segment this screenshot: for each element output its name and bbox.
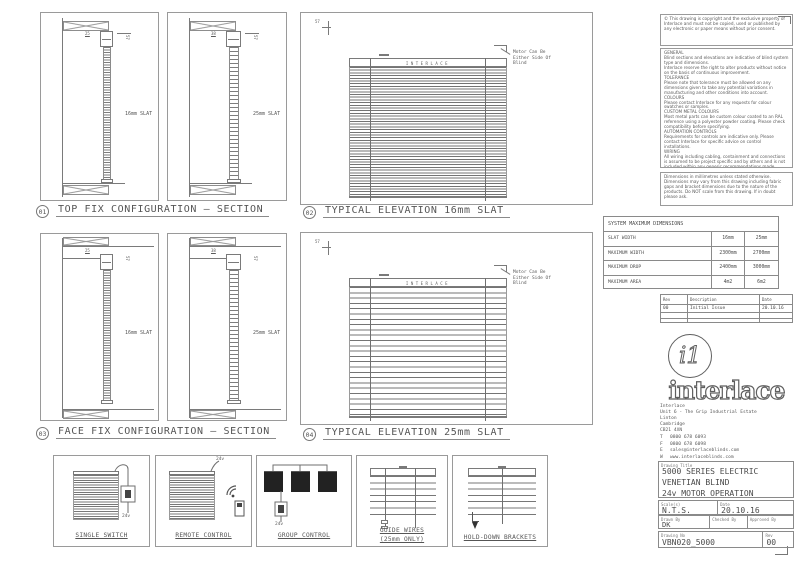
slat-size-label: 16mm SLAT — [125, 111, 152, 117]
mini-headrail — [370, 468, 436, 476]
detail-caption: GROUP CONTROL — [257, 532, 351, 541]
rev-cell: 00 — [661, 304, 687, 312]
table-cell: MAXIMUM AREA — [604, 275, 711, 290]
slat-stack-16mm — [103, 47, 111, 181]
date-cell: Date 20.10.16 — [718, 501, 793, 514]
voltage-label: 24v — [275, 523, 283, 528]
bracket-clip — [379, 274, 389, 276]
ladder-tape-left — [370, 278, 371, 421]
viewport-number-badge: 03 — [36, 427, 49, 440]
detail-remote-control: 24v REMOTE CONTROL — [155, 455, 252, 547]
ladder-tape-right — [485, 278, 486, 421]
voltage-label: 24v — [122, 515, 130, 520]
rev-cell: Initial Issue — [687, 304, 759, 312]
slat-area-16mm — [349, 67, 507, 196]
viewport-number-badge: 02 — [303, 206, 316, 219]
slat-size-label: 25mm SLAT — [253, 111, 280, 117]
headrail-elevation: INTERLACE — [349, 278, 507, 287]
bracket-arm-line — [190, 258, 226, 259]
bottom-rail — [349, 196, 507, 198]
contact-line: E sales@interlaceblinds.com — [660, 448, 739, 455]
rev-header: Rev — [661, 295, 687, 304]
table-cell: 16mm — [711, 231, 744, 246]
viewport-caption: TYPICAL ELEVATION 25mm SLAT — [323, 427, 510, 440]
headrail-detail-line — [228, 262, 239, 263]
ceiling-batten-hatch — [63, 237, 109, 246]
table-cell: 4m2 — [711, 275, 744, 290]
ceiling-line — [62, 246, 154, 247]
checked-by-cell: Checked By — [710, 516, 747, 528]
slat-stack-25mm — [229, 47, 239, 181]
field-label: Checked By — [712, 517, 736, 522]
viewport-topfix-25mm-section: 38 57 25mm SLAT — [167, 12, 287, 201]
wall-line — [189, 18, 190, 197]
ceiling-batten-hatch — [190, 237, 236, 246]
company-contacts: T 0800 678 6093 F 0800 678 6098 E sales@… — [660, 435, 739, 462]
ceiling-batten-hatch — [63, 21, 109, 31]
center-tape — [502, 468, 503, 524]
headrail-elevation: INTERLACE — [349, 58, 507, 67]
bottom-rail — [101, 400, 113, 404]
general-notes: GENERAL Blind sections and elevations ar… — [660, 48, 793, 168]
detail-caption: REMOTE CONTROL — [156, 532, 251, 541]
voltage-label: 24v — [216, 458, 224, 463]
sill-batten-hatch — [190, 185, 236, 195]
dim-width-label: 25 — [85, 249, 90, 253]
drawing-title: 5000 SERIES ELECTRIC VENETIAN BLIND 24v … — [662, 467, 758, 499]
detail-caption: HOLD-DOWN BRACKETS — [453, 534, 547, 543]
sill-line — [63, 183, 125, 184]
ladder-tape-left — [370, 58, 371, 201]
slat-stack-16mm — [103, 270, 111, 400]
detail-hold-down-brackets: HOLD-DOWN BRACKETS — [452, 455, 548, 547]
dim-line — [117, 33, 131, 34]
title-block-drawing-title: Drawing Title 5000 SERIES ELECTRIC VENET… — [658, 461, 794, 498]
contact-line: T 0800 678 6093 — [660, 435, 739, 442]
guide-wire-left — [385, 468, 386, 528]
system-max-dimensions-table: SYSTEM MAXIMUM DIMENSIONS SLAT WIDTH 16m… — [603, 216, 779, 289]
rev-cell: Rev 00 — [763, 532, 793, 547]
table-cell: 3000mm — [744, 260, 778, 275]
bracket-clip — [399, 466, 407, 468]
headrail-brand-text: INTERLACE — [350, 281, 506, 286]
company-address: Interlace Unit 6 - The Grip Industrial E… — [660, 404, 757, 434]
table-cell: 6m2 — [744, 275, 778, 290]
detail-group-control: 24v GROUP CONTROL — [256, 455, 352, 547]
viewport-facefix-25mm-section: 38 57 25mm SLAT — [167, 233, 287, 421]
motor-annotation: Motor Can Be Either Side Of Blind — [513, 270, 563, 287]
revision-table: Rev Description Date 00 Initial Issue 20… — [660, 294, 793, 323]
hold-down-pin-arrow — [472, 522, 478, 529]
table-cell: SLAT WIDTH — [604, 231, 711, 246]
slat-stack-25mm — [229, 270, 239, 400]
contact-key: T — [660, 435, 670, 442]
bracket-arm-line — [63, 258, 100, 259]
floor-batten-hatch — [190, 410, 236, 419]
drawing-number-cell: Drawing No VBN020_5000 — [659, 532, 763, 547]
wire-anchor-top — [381, 520, 388, 524]
viewport-facefix-16mm-section: 25 57 16mm SLAT — [40, 233, 159, 421]
bracket-clip — [379, 54, 389, 56]
contact-key: E — [660, 448, 670, 455]
dim-height-label: 57 — [253, 256, 257, 261]
guide-wire-right — [415, 468, 416, 528]
title-block-scale-date: Scale(s) N.T.S. Date 20.10.16 — [658, 500, 794, 515]
wall-line — [62, 18, 63, 197]
dim-width-label: 25 — [85, 32, 90, 36]
ceiling-batten-hatch — [190, 21, 236, 31]
dim-width-label: 38 — [211, 249, 216, 253]
detail-guide-wires: GUIDE WIRES (25mm ONLY) — [356, 455, 448, 547]
dimensions-note: Dimensions in millimetres unless stated … — [660, 172, 793, 206]
dim-line — [245, 33, 259, 34]
rev-cell — [759, 318, 792, 324]
ladder-tape-right — [485, 58, 486, 201]
viewport-caption: TYPICAL ELEVATION 16mm SLAT — [323, 205, 510, 218]
viewport-elevation-25mm: 57 INTERLACE Motor Can Be Either Side Of… — [300, 232, 593, 425]
dim-extension-line — [328, 241, 329, 255]
floor-batten-hatch — [63, 410, 109, 419]
bottom-rail — [101, 179, 113, 183]
slat-size-label: 25mm SLAT — [253, 330, 280, 336]
wall-line — [62, 238, 63, 418]
mini-slats — [370, 476, 436, 520]
headrail-detail-line — [102, 262, 111, 263]
scale-cell: Scale(s) N.T.S. — [659, 501, 718, 514]
drawn-by-cell: Drawn By DK — [659, 516, 710, 528]
detail-caption: GUIDE WIRES (25mm ONLY) — [357, 527, 447, 544]
rev-value: 00 — [766, 538, 776, 549]
bottom-rail — [227, 400, 241, 404]
viewport-number-badge: 01 — [36, 205, 49, 218]
brand-wordmark: interlace — [660, 376, 793, 405]
table-cell: 2700mm — [744, 246, 778, 261]
viewport-elevation-16mm: 57 INTERLACE Motor Can Be Either Side Of… — [300, 12, 593, 205]
interlace-logo-icon: i1 — [668, 334, 712, 378]
headrail-brand-text: INTERLACE — [350, 61, 506, 66]
detail-single-switch: 24v SINGLE SWITCH — [53, 455, 150, 547]
dim-tick — [322, 247, 331, 248]
dim-height-label: 57 — [253, 35, 257, 40]
dim-extension-line — [328, 21, 329, 35]
dim-label: 57 — [315, 240, 320, 244]
sill-line — [190, 183, 252, 184]
dim-label: 57 — [315, 20, 320, 24]
rev-cell — [687, 318, 759, 324]
table-cell: 2400mm — [711, 260, 744, 275]
table-cell: MAXIMUM WIDTH — [604, 246, 711, 261]
approved-by-cell: Approved By — [748, 516, 793, 528]
wall-line — [189, 238, 190, 418]
dim-height-label: 57 — [125, 35, 129, 40]
viewport-number-badge: 04 — [303, 428, 316, 441]
logo-monogram: i1 — [679, 343, 701, 369]
contact-value: 0800 678 6093 — [670, 435, 706, 442]
dim-tick — [322, 27, 331, 28]
hold-down-bracket — [472, 512, 479, 522]
drawing-sheet: 25 57 16mm SLAT 38 57 25mm SLAT 01 TOP F… — [0, 0, 800, 566]
table-cell: MAXIMUM DROP — [604, 260, 711, 275]
viewport-topfix-16mm-section: 25 57 16mm SLAT — [40, 12, 159, 201]
slat-area-25mm — [349, 287, 507, 416]
dim-height-label: 57 — [125, 256, 129, 261]
rev-header: Description — [687, 295, 759, 304]
rev-header: Date — [759, 295, 792, 304]
ceiling-line — [189, 246, 281, 247]
detail-caption: SINGLE SWITCH — [54, 532, 149, 541]
title-block-signatures: Drawn By DK Checked By Approved By — [658, 515, 794, 529]
sill-batten-hatch — [63, 185, 109, 195]
rev-cell: 20.10.16 — [759, 304, 792, 312]
contact-value: sales@interlaceblinds.com — [670, 448, 739, 455]
bottom-rail — [349, 416, 507, 418]
title-block-number-rev: Drawing No VBN020_5000 Rev 00 — [658, 531, 794, 548]
bottom-rail — [227, 179, 241, 183]
headrail-detail-line — [102, 39, 111, 40]
drawn-by-value: DK — [662, 521, 670, 530]
slat-size-label: 16mm SLAT — [125, 330, 152, 336]
motor-annotation: Motor Can Be Either Side Of Blind — [513, 50, 563, 67]
table-header: SYSTEM MAXIMUM DIMENSIONS — [604, 217, 778, 231]
copyright-note: © This drawing is copyright and the excl… — [660, 14, 793, 46]
table-cell: 25mm — [744, 231, 778, 246]
table-cell: 2300mm — [711, 246, 744, 261]
viewport-caption: FACE FIX CONFIGURATION — SECTION — [56, 426, 276, 439]
rev-cell — [661, 318, 687, 324]
headrail-detail-line — [228, 39, 239, 40]
viewport-caption: TOP FIX CONFIGURATION — SECTION — [56, 204, 269, 217]
field-label: Approved By — [750, 517, 777, 522]
dim-width-label: 38 — [211, 32, 216, 36]
drawing-number-value: VBN020_5000 — [662, 538, 715, 549]
